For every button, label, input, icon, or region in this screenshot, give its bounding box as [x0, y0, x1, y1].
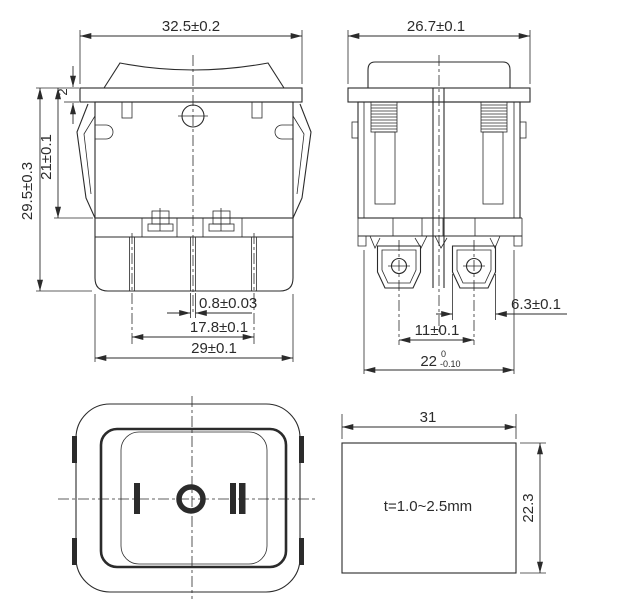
dim-front-top-width: 32.5±0.2 — [162, 18, 220, 35]
dim-cutout-height: 22.3 — [520, 493, 537, 522]
dim-depth-tol-upper: 0 — [441, 349, 446, 359]
panel-thickness-note: t=1.0~2.5mm — [384, 498, 472, 515]
dim-depth-tol-lower: -0.10 — [440, 359, 461, 369]
drawing-canvas: 32.5±0.2 2 21±0.1 29.5±0.3 0.8±0.03 17.8… — [0, 0, 620, 599]
dim-cutout-width: 31 — [420, 409, 437, 426]
dim-front-pin-thickness: 0.8±0.03 — [199, 295, 257, 312]
marking-on-icon — [134, 483, 140, 514]
dim-front-overall-height: 29.5±0.3 — [19, 162, 36, 220]
mounting-tab-icon — [299, 538, 304, 565]
dim-front-pin-span: 17.8±0.1 — [190, 319, 248, 336]
dim-front-flange-thickness: 2 — [55, 88, 70, 95]
mounting-tab-icon — [72, 538, 77, 565]
dim-terminal-pitch: 11±0.1 — [415, 322, 460, 339]
dim-front-upper-height: 21±0.1 — [38, 134, 55, 180]
mounting-tab-icon — [72, 436, 77, 463]
dim-terminal-width: 6.3±0.1 — [511, 296, 561, 313]
mounting-tab-icon — [299, 436, 304, 463]
dim-side-top-width: 26.7±0.1 — [407, 18, 465, 35]
dim-front-body-width: 29±0.1 — [191, 340, 237, 357]
dim-depth-nominal: 22 — [420, 353, 437, 370]
technical-drawing: 32.5±0.2 2 21±0.1 29.5±0.3 0.8±0.03 17.8… — [0, 0, 620, 599]
